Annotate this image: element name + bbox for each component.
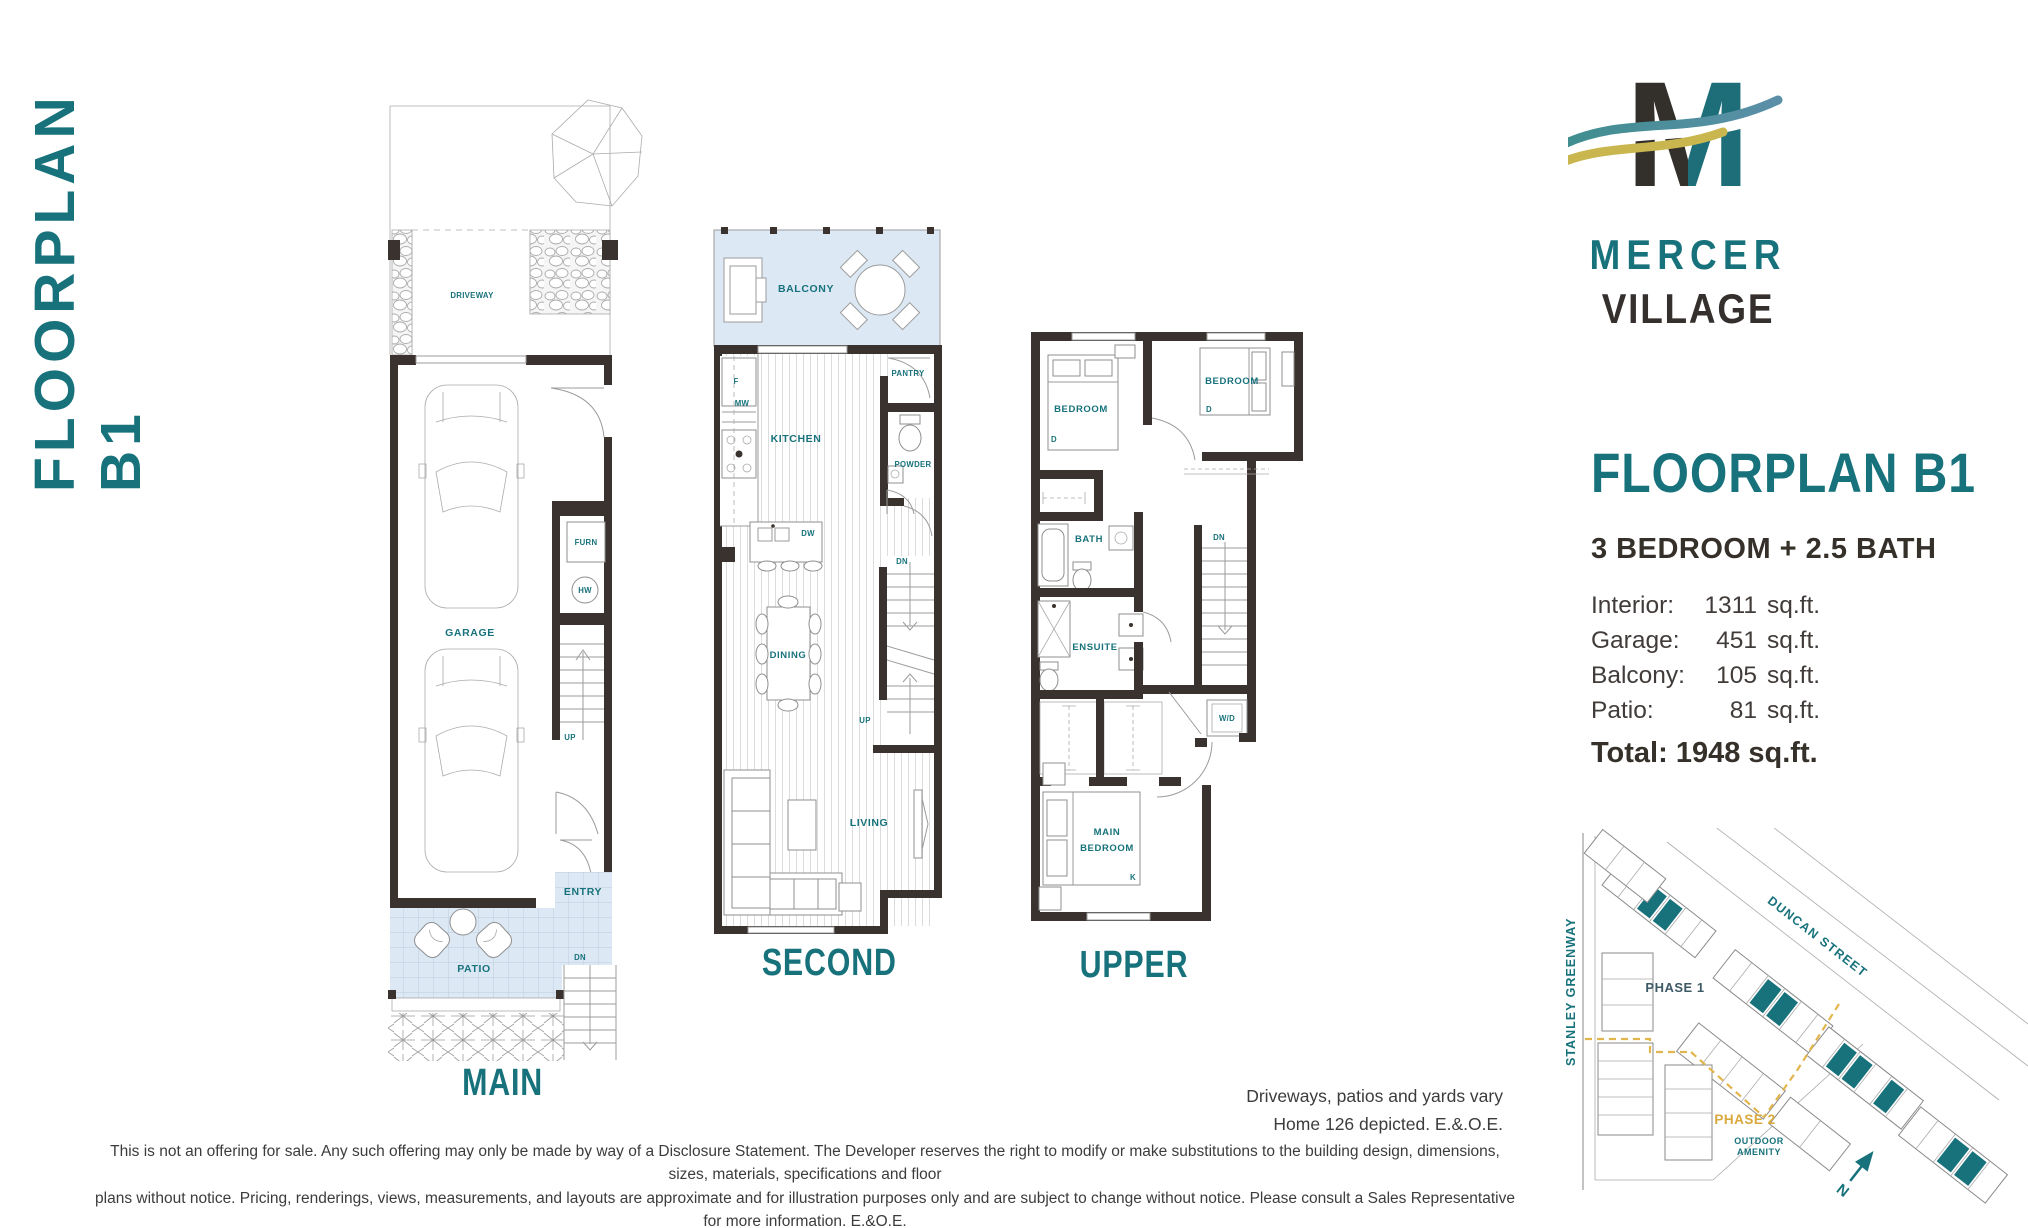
garage-door <box>416 356 526 363</box>
area-total: Total: 1948 sq.ft. <box>1591 737 1951 770</box>
garage-label: GARAGE <box>445 627 495 639</box>
stat-value: 451 <box>1703 627 1767 655</box>
living-label: LIVING <box>850 817 889 829</box>
toilet <box>1073 562 1091 591</box>
door-arc <box>1152 418 1195 460</box>
bed-double <box>1048 355 1118 450</box>
side-table <box>839 883 861 911</box>
plan-details: FLOORPLAN B1 3 BEDROOM + 2.5 BATH Interi… <box>1591 440 1951 770</box>
dw-label: DW <box>801 529 815 538</box>
stairs-down <box>1202 542 1247 665</box>
disclaimer-line1: This is not an offering for sale. Any su… <box>95 1140 1515 1187</box>
microwave-label: MW <box>735 399 750 408</box>
stat-unit: sq.ft. <box>1767 592 1847 620</box>
brand-logo: M MERCER VILLAGE <box>1568 58 1808 333</box>
disclaimer-line2: plans without notice. Pricing, rendering… <box>95 1187 1515 1228</box>
bathtub <box>1038 524 1068 586</box>
stairs-up <box>560 644 604 740</box>
vanity-sink <box>1109 526 1133 550</box>
wall-stub <box>388 240 400 260</box>
floorplan-sheet: FLOORPLAN B1 DRIVEWAY <box>0 0 2028 1228</box>
wall-stub <box>556 990 564 999</box>
wd-label: W/D <box>1219 714 1235 723</box>
up-label: UP <box>859 716 870 725</box>
area-stats: Interior: 1311 sq.ft. Garage: 451 sq.ft.… <box>1591 592 1951 725</box>
pantry-floor <box>888 354 934 403</box>
bedroom-right-label: BEDROOM <box>1205 376 1259 387</box>
stat-value: 1311 <box>1703 592 1767 620</box>
bed-size-k: K <box>1130 873 1136 882</box>
stat-unit: sq.ft. <box>1767 662 1847 690</box>
outdoor-amenity-label2: AMENITY <box>1737 1147 1781 1157</box>
bed-king <box>1043 792 1140 885</box>
dining-label: DINING <box>770 650 807 661</box>
bedroom-divider-wall <box>1143 332 1152 425</box>
ensuite-label: ENSUITE <box>1072 642 1117 653</box>
main-bedroom-label: MAIN <box>1094 827 1121 838</box>
car <box>419 385 524 608</box>
upper-caption: UPPER <box>1029 944 1239 987</box>
tree-icon <box>552 100 642 206</box>
patio-table <box>450 909 476 935</box>
brand-name-line1: MERCER <box>1568 231 1808 279</box>
stat-label: Patio: <box>1591 697 1703 725</box>
stat-value: 105 <box>1703 662 1767 690</box>
bath-label: BATH <box>1075 534 1103 545</box>
nightstand <box>1282 352 1294 386</box>
plan-subtitle: 3 BEDROOM + 2.5 BATH <box>1591 533 1951 566</box>
pantry-label: PANTRY <box>892 369 925 378</box>
stat-value: 81 <box>1703 697 1767 725</box>
variance-note: Driveways, patios and yards vary Home 12… <box>1246 1082 1503 1138</box>
stat-row-balcony: Balcony: 105 sq.ft. <box>1591 662 1951 690</box>
stairs-down-exterior <box>564 965 616 1060</box>
stat-row-garage: Garage: 451 sq.ft. <box>1591 627 1951 655</box>
dn-label: DN <box>896 557 908 566</box>
lounge-chair <box>724 258 766 322</box>
planter <box>392 998 560 1011</box>
plan-title: FLOORPLAN B1 <box>1591 440 1951 505</box>
nightstand <box>1043 763 1065 785</box>
stat-label: Balcony: <box>1591 662 1703 690</box>
variance-note-line1: Driveways, patios and yards vary <box>1246 1082 1503 1110</box>
front-door-arc <box>551 388 604 437</box>
bed-size-d: D <box>1051 435 1057 444</box>
nightstand <box>1039 887 1061 910</box>
patio-label: PATIO <box>457 963 491 975</box>
svg-text:N: N <box>1833 1181 1852 1201</box>
stat-row-patio: Patio: 81 sq.ft. <box>1591 697 1951 725</box>
floorplan-upper: BEDROOM D BEDROOM D <box>1029 330 1307 930</box>
duncan-street-label: DUNCAN STREET <box>1765 894 1870 980</box>
up-label: UP <box>564 733 575 742</box>
wall-stub <box>388 990 396 999</box>
range <box>722 430 756 478</box>
dn-label: DN <box>574 953 586 962</box>
dn-label: DN <box>1213 533 1225 542</box>
shrubs <box>388 1013 564 1061</box>
furn-label: FURN <box>575 538 598 547</box>
car <box>419 649 524 872</box>
legal-disclaimer: This is not an offering for sale. Any su… <box>95 1140 1515 1228</box>
balcony-label: BALCONY <box>778 283 834 295</box>
phase2-label: PHASE 2 <box>1714 1112 1775 1127</box>
toilet <box>899 415 921 451</box>
site-map: STANLEY GREENWAY DUNCAN STREET PHASE 1 P… <box>1563 828 2028 1220</box>
brand-name-line2: VILLAGE <box>1568 285 1808 333</box>
kitchen-label: KITCHEN <box>771 433 822 445</box>
floorplan-main: DRIVEWAY <box>388 92 650 1072</box>
variance-note-line2: Home 126 depicted. E.&.O.E. <box>1246 1110 1503 1138</box>
stat-label: Interior: <box>1591 592 1703 620</box>
coffee-table <box>788 800 816 850</box>
phase1-label: PHASE 1 <box>1645 980 1704 995</box>
main-bedroom-label2: BEDROOM <box>1080 843 1134 854</box>
driveway-label: DRIVEWAY <box>450 291 494 300</box>
bed-size-d: D <box>1206 405 1212 414</box>
bedroom-left-label: BEDROOM <box>1054 404 1108 415</box>
powder-label: POWDER <box>895 460 932 469</box>
floorplan-second: BALCONY F MW KITCHEN <box>712 226 946 940</box>
brand-monogram-icon: M <box>1568 58 1808 208</box>
stanley-greenway-label: STANLEY GREENWAY <box>1564 918 1578 1066</box>
second-caption: SECOND <box>712 942 946 985</box>
entry-label: ENTRY <box>564 886 602 898</box>
stat-unit: sq.ft. <box>1767 627 1847 655</box>
main-caption: MAIN <box>388 1062 618 1105</box>
toilet <box>1040 662 1058 691</box>
door-arc <box>556 792 598 880</box>
shower <box>1038 601 1070 657</box>
stat-label: Garage: <box>1591 627 1703 655</box>
stat-row-interior: Interior: 1311 sq.ft. <box>1591 592 1951 620</box>
door-arc <box>1143 612 1171 642</box>
pebble-strip-right <box>530 230 610 314</box>
stat-unit: sq.ft. <box>1767 697 1847 725</box>
dresser <box>1115 345 1135 358</box>
wall-stub <box>602 240 618 260</box>
sheet-side-title: FLOORPLAN B1 <box>22 52 154 492</box>
outdoor-amenity-label: OUTDOOR <box>1734 1136 1784 1146</box>
door-leaf <box>1169 692 1201 734</box>
hw-label: HW <box>578 586 592 595</box>
